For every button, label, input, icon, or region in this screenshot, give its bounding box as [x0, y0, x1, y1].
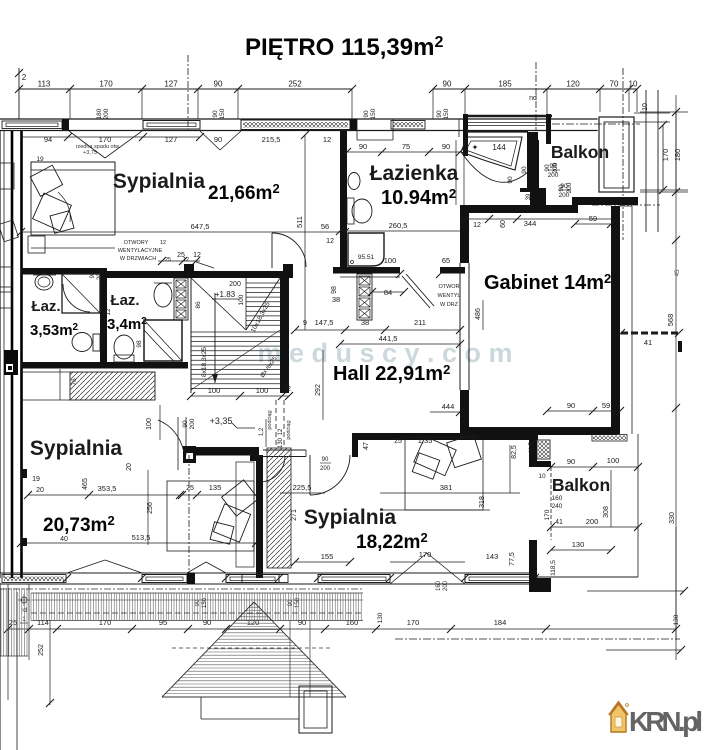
svg-text:252: 252 — [288, 80, 302, 89]
svg-text:✦: ✦ — [472, 143, 479, 152]
svg-text:486: 486 — [475, 308, 482, 320]
svg-text:568: 568 — [666, 314, 675, 327]
svg-text:170: 170 — [544, 509, 551, 520]
svg-text:135: 135 — [209, 483, 222, 492]
svg-text:381: 381 — [440, 483, 453, 492]
svg-text:225,5: 225,5 — [293, 483, 312, 492]
svg-text:100: 100 — [607, 456, 620, 465]
svg-text:12: 12 — [326, 238, 334, 245]
svg-text:OTWOR: OTWOR — [438, 284, 459, 290]
svg-text:8x18,3x25: 8x18,3x25 — [201, 347, 208, 377]
svg-text:nd: nd — [529, 95, 537, 102]
svg-text:441,5: 441,5 — [379, 334, 398, 343]
svg-text:25: 25 — [186, 485, 194, 492]
svg-text:90: 90 — [507, 176, 514, 184]
svg-text:160: 160 — [346, 618, 359, 627]
svg-text:127: 127 — [164, 80, 178, 89]
svg-text:170: 170 — [407, 618, 420, 627]
svg-text:184: 184 — [494, 618, 507, 627]
svg-text:W DRZ: W DRZ — [440, 302, 459, 308]
svg-text:90: 90 — [322, 457, 329, 463]
svg-text:WENTYL: WENTYL — [438, 293, 461, 299]
svg-text:200: 200 — [320, 466, 331, 472]
svg-text:100: 100 — [256, 386, 269, 395]
svg-text:200: 200 — [97, 269, 103, 280]
svg-text:86: 86 — [195, 301, 202, 309]
svg-text:90: 90 — [203, 618, 211, 627]
svg-text:100: 100 — [208, 386, 221, 395]
svg-text:Łaz.: Łaz. — [31, 298, 60, 315]
svg-text:77,5: 77,5 — [509, 552, 516, 566]
svg-text:Sypialnia: Sypialnia — [30, 437, 123, 460]
svg-text:353,5: 353,5 — [98, 484, 117, 493]
svg-text:170: 170 — [99, 618, 112, 627]
svg-text:41: 41 — [644, 338, 652, 347]
svg-text:WENTYLACYJNE: WENTYLACYJNE — [118, 248, 163, 254]
svg-text:200: 200 — [103, 108, 110, 119]
svg-text:10: 10 — [538, 473, 546, 480]
svg-text:3,53m2: 3,53m2 — [30, 322, 79, 339]
svg-text:39: 39 — [526, 193, 532, 200]
svg-text:60: 60 — [500, 220, 507, 228]
svg-text:170: 170 — [661, 149, 670, 162]
svg-text:25: 25 — [9, 618, 17, 627]
svg-text:160: 160 — [436, 580, 442, 591]
svg-text:252: 252 — [38, 644, 45, 656]
svg-text:511: 511 — [295, 216, 304, 228]
svg-text:292: 292 — [315, 384, 322, 396]
svg-text:Gabinet 14m2: Gabinet 14m2 — [484, 271, 611, 294]
svg-text:130: 130 — [278, 437, 284, 448]
svg-text:90: 90 — [182, 420, 189, 428]
svg-text:12: 12 — [278, 428, 284, 435]
svg-text:90: 90 — [214, 135, 222, 144]
svg-text:127: 127 — [165, 135, 178, 144]
svg-text:Sypialnia: Sypialnia — [113, 170, 206, 193]
svg-text:12: 12 — [323, 135, 331, 144]
svg-text:90: 90 — [442, 142, 450, 151]
svg-text:344: 344 — [524, 219, 537, 228]
svg-text:200: 200 — [566, 182, 573, 193]
svg-text:113: 113 — [38, 80, 51, 89]
svg-text:180: 180 — [673, 149, 682, 162]
svg-text:180: 180 — [96, 108, 103, 119]
svg-text:215,5: 215,5 — [262, 135, 281, 144]
svg-text:65: 65 — [442, 256, 450, 265]
svg-text:130: 130 — [572, 540, 585, 549]
svg-text:150: 150 — [443, 108, 450, 119]
svg-text:+3,35: +3,35 — [210, 416, 233, 426]
svg-text:94: 94 — [44, 135, 52, 144]
svg-text:47: 47 — [363, 442, 370, 450]
svg-text:170: 170 — [99, 80, 113, 89]
svg-text:90: 90 — [567, 457, 575, 466]
svg-text:38: 38 — [332, 295, 340, 304]
svg-text:Łazienka: Łazienka — [370, 162, 459, 185]
svg-text:12: 12 — [283, 386, 291, 393]
svg-text:KRN.pl: KRN.pl — [629, 706, 703, 737]
svg-text:100: 100 — [384, 256, 397, 265]
svg-text:150: 150 — [219, 108, 226, 119]
svg-text:2: 2 — [22, 73, 27, 82]
svg-text:120: 120 — [566, 80, 580, 89]
svg-text:90: 90 — [298, 618, 306, 627]
svg-text:98: 98 — [331, 286, 338, 294]
svg-text:+3,75: +3,75 — [83, 150, 97, 156]
svg-text:130: 130 — [673, 614, 680, 625]
svg-text:90: 90 — [567, 401, 575, 410]
svg-text:150: 150 — [370, 108, 377, 119]
svg-text:18,22m2: 18,22m2 — [356, 530, 428, 553]
svg-text:95: 95 — [159, 618, 167, 627]
svg-text:40: 40 — [60, 536, 68, 543]
svg-text:100: 100 — [238, 294, 245, 305]
svg-text:90: 90 — [558, 184, 565, 192]
svg-text:90: 90 — [544, 164, 551, 172]
svg-text:20: 20 — [126, 463, 133, 471]
svg-text:200: 200 — [189, 418, 196, 429]
svg-text:Sypialnia: Sypialnia — [304, 506, 397, 529]
svg-text:10: 10 — [642, 103, 649, 111]
svg-text:20: 20 — [36, 487, 44, 494]
svg-text:170: 170 — [419, 550, 432, 559]
svg-text:240: 240 — [552, 503, 563, 510]
svg-text:90: 90 — [359, 142, 367, 151]
svg-text:W DRZWIACH: W DRZWIACH — [120, 256, 156, 262]
svg-text:56: 56 — [321, 222, 329, 231]
svg-text:513,5: 513,5 — [132, 533, 151, 542]
svg-text:200: 200 — [586, 517, 599, 526]
svg-text:465: 465 — [82, 478, 89, 490]
svg-text:90: 90 — [363, 110, 370, 118]
svg-text:1,2: 1,2 — [259, 427, 265, 436]
svg-text:211: 211 — [414, 318, 426, 327]
svg-text:25: 25 — [177, 252, 185, 259]
svg-text:95.51: 95.51 — [358, 254, 375, 261]
svg-text:podciąg: podciąg — [267, 410, 273, 429]
svg-text:12: 12 — [473, 222, 481, 229]
svg-text:150: 150 — [295, 597, 301, 608]
svg-text:260,5: 260,5 — [389, 221, 408, 230]
svg-text:38: 38 — [361, 318, 369, 327]
svg-text:90: 90 — [443, 80, 452, 89]
svg-text:318: 318 — [479, 496, 486, 508]
svg-text:82,5: 82,5 — [511, 445, 518, 459]
svg-text:+1.83: +1.83 — [215, 290, 236, 299]
svg-text:76: 76 — [71, 378, 78, 386]
svg-text:PIĘTRO 115,39m2: PIĘTRO 115,39m2 — [245, 34, 443, 61]
svg-text:59: 59 — [602, 401, 610, 410]
svg-text:45: 45 — [675, 269, 681, 276]
svg-text:59: 59 — [589, 214, 597, 223]
svg-text:118,5: 118,5 — [550, 560, 557, 576]
svg-text:330: 330 — [669, 512, 676, 524]
svg-text:200: 200 — [443, 580, 449, 591]
svg-text:21,66m2: 21,66m2 — [208, 181, 280, 204]
svg-text:90: 90 — [212, 110, 219, 118]
svg-text:75: 75 — [402, 142, 410, 151]
svg-text:98: 98 — [136, 340, 143, 348]
svg-text:19: 19 — [32, 476, 40, 483]
svg-text:Łaz.: Łaz. — [110, 292, 139, 309]
svg-text:70: 70 — [610, 80, 619, 89]
svg-text:143: 143 — [486, 552, 499, 561]
svg-text:144: 144 — [492, 143, 506, 152]
svg-text:147,5: 147,5 — [315, 318, 334, 327]
svg-text:160: 160 — [552, 495, 563, 502]
svg-text:10: 10 — [629, 80, 638, 89]
svg-text:130: 130 — [377, 612, 384, 623]
svg-text:OTWORY: OTWORY — [124, 240, 149, 246]
svg-text:647,5: 647,5 — [191, 222, 210, 231]
svg-text:170: 170 — [99, 135, 112, 144]
svg-text:41: 41 — [555, 519, 563, 526]
svg-text:185: 185 — [498, 80, 512, 89]
svg-text:200: 200 — [552, 162, 559, 173]
svg-text:200: 200 — [229, 281, 241, 288]
svg-text:Balkon: Balkon — [552, 475, 610, 495]
svg-text:444: 444 — [442, 402, 455, 411]
svg-text:25: 25 — [394, 438, 402, 445]
svg-text:12: 12 — [160, 240, 166, 246]
svg-text:155: 155 — [321, 552, 334, 561]
svg-text:12: 12 — [105, 308, 112, 316]
svg-text:84: 84 — [384, 288, 392, 297]
svg-text:podciąg: podciąg — [286, 420, 292, 439]
svg-text:3,4m2: 3,4m2 — [107, 316, 147, 333]
svg-text:90: 90 — [521, 166, 528, 174]
svg-text:90: 90 — [90, 271, 96, 278]
svg-text:90: 90 — [214, 80, 223, 89]
svg-text:20,73m2: 20,73m2 — [43, 513, 115, 536]
svg-text:9: 9 — [303, 320, 307, 327]
svg-text:Hall 22,91m2: Hall 22,91m2 — [333, 362, 450, 385]
svg-text:41,5: 41,5 — [529, 442, 535, 454]
svg-text:308: 308 — [603, 506, 610, 518]
svg-text:100: 100 — [146, 418, 153, 430]
svg-text:271: 271 — [291, 509, 298, 521]
svg-text:90: 90 — [436, 110, 443, 118]
svg-text:Balkon: Balkon — [551, 142, 609, 162]
svg-text:10.94m2: 10.94m2 — [381, 186, 456, 209]
